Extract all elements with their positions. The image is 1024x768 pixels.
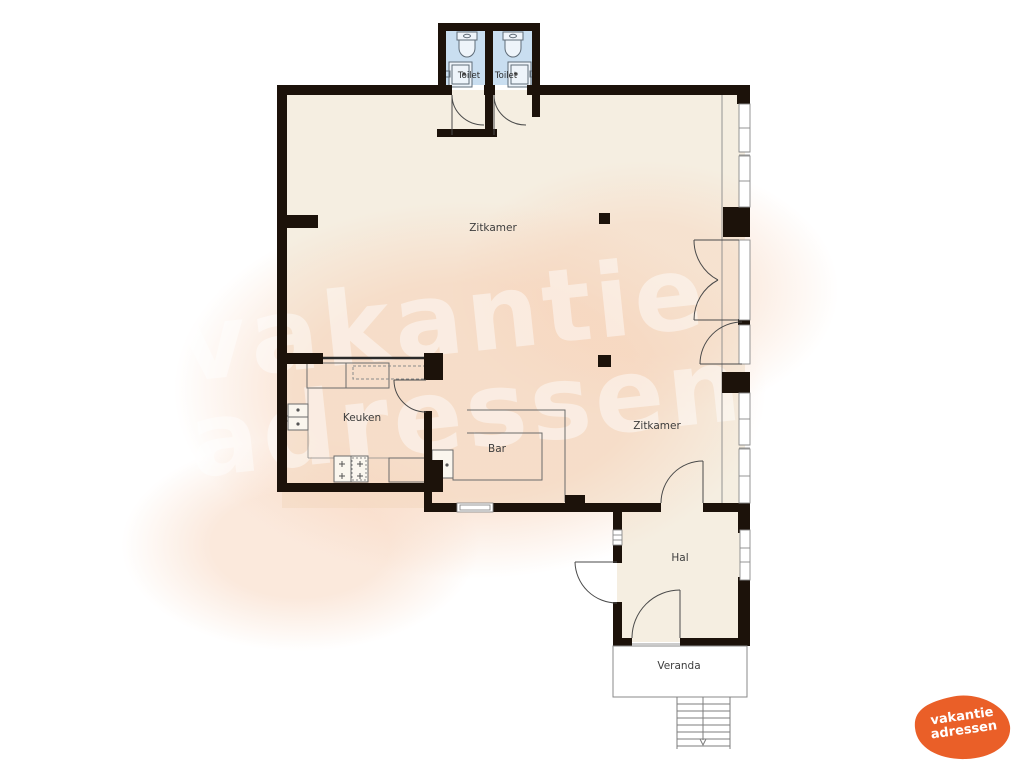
kitchen-counter-right	[389, 458, 427, 482]
label-zitkamer-lower: Zitkamer	[633, 420, 681, 432]
label-hal: Hal	[671, 552, 688, 564]
toilet-right-wc	[503, 32, 523, 57]
label-veranda: Veranda	[657, 660, 700, 672]
label-toilet-right: Toilet	[494, 71, 518, 81]
kitchen-upper-cabinet	[353, 366, 427, 379]
vakantieadressen-logo: vakantie adressen	[913, 693, 1013, 763]
door-frame-right-double	[739, 240, 750, 320]
door-hal-bar	[575, 562, 617, 603]
room-labels: Toilet Toilet Zitkamer Keuken Bar Zitkam…	[343, 71, 701, 672]
label-toilet-left: Toilet	[457, 71, 481, 81]
window-right-upper	[739, 104, 750, 207]
stairs	[677, 697, 730, 749]
kitchen-counter-top	[307, 363, 389, 388]
label-bar: Bar	[488, 443, 507, 455]
door-right-single	[700, 322, 742, 364]
window-right-lower	[739, 393, 750, 503]
door-toilet-right	[494, 95, 526, 135]
label-zitkamer-upper: Zitkamer	[469, 222, 517, 234]
window-bar-south	[457, 503, 493, 512]
door-zitkamer-hal	[661, 461, 703, 503]
bar-counter	[432, 410, 565, 502]
window-hal-right	[740, 530, 750, 580]
label-keuken: Keuken	[343, 412, 381, 424]
window-hal-left	[613, 530, 622, 545]
floorplan-page: vakantie adressen	[0, 0, 1024, 768]
door-right-double	[694, 240, 739, 320]
door-keuken	[394, 380, 426, 412]
toilet-left-wc	[457, 32, 477, 57]
doors	[394, 95, 742, 644]
plan-structure-layer: Toilet Toilet Zitkamer Keuken Bar Zitkam…	[0, 0, 1024, 768]
door-frame-right-single	[739, 325, 750, 364]
door-front	[632, 590, 680, 644]
kitchen-stove	[334, 456, 368, 482]
